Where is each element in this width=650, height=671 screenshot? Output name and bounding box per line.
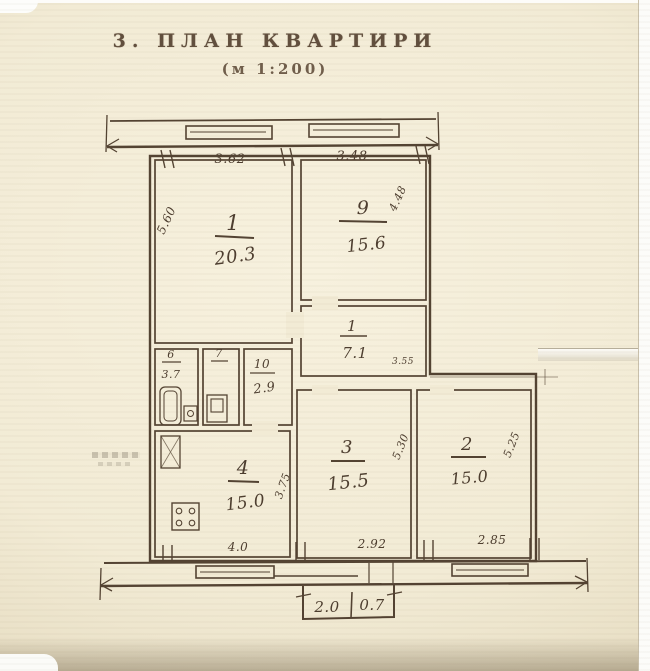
bottom-balcony: 2.0 0.7 — [296, 584, 402, 619]
door-opening — [252, 421, 278, 435]
scanned-floor-plan-page: 3. ПЛАН КВАРТИРИ (м 1:200) 3.62 3.48 — [0, 0, 650, 671]
dim-living2-depth: 5.25 — [501, 430, 523, 459]
dim-living9-depth: 4.48 — [386, 184, 409, 214]
dim-bottom-living3: 2.92 — [357, 537, 387, 551]
bath-area: 3.7 — [162, 368, 181, 381]
scan-corner-bottom-left — [0, 654, 58, 671]
room-labels: 1 20.3 9 15.6 1 7.1 3.55 6 3.7 7 10 2.9 … — [162, 197, 490, 515]
room-living3-number: 3 — [341, 437, 353, 458]
room-living3-area: 15.5 — [326, 470, 370, 495]
hall-number: 1 — [347, 317, 357, 335]
room-kitchen-number: 4 — [236, 457, 250, 479]
scan-corner-top-left — [0, 0, 38, 13]
stove-icon — [172, 503, 199, 530]
room-living2-area: 15.0 — [450, 466, 489, 488]
bathtub-icon — [160, 387, 181, 425]
room-living9-area: 15.6 — [346, 233, 388, 257]
hall-area: 7.1 — [342, 344, 367, 362]
room-living9-walls — [301, 160, 426, 300]
door-opening — [430, 385, 454, 395]
dim-living3-depth: 5.30 — [390, 432, 412, 461]
kitchen-sink-icon — [161, 436, 180, 468]
scan-edge-top — [0, 0, 650, 3]
room-kitchen-area: 15.0 — [224, 491, 266, 516]
dim-balcony-width: 2.0 — [313, 598, 339, 616]
dim-hall-width: 3.55 — [392, 357, 414, 367]
toilet-icon — [207, 395, 227, 422]
dim-bottom-living2: 2.85 — [477, 533, 507, 547]
drawing-scale-note: (м 1:200) — [70, 60, 480, 78]
floor-plan-drawing: 3.62 3.48 — [0, 0, 650, 671]
fixtures — [160, 387, 227, 530]
room-living1-number: 1 — [226, 211, 240, 235]
room-living9-number: 9 — [357, 197, 370, 219]
dim-balcony-depth: 0.7 — [359, 596, 384, 614]
bottom-facade-strip — [100, 538, 588, 600]
scan-smudge-artifact — [98, 462, 130, 466]
room-kitchen-walls — [155, 431, 290, 557]
door-opening — [312, 385, 338, 395]
bath-number: 6 — [167, 348, 175, 361]
scan-bottom-shadow — [0, 637, 650, 671]
dim-living1-depth: 5.60 — [154, 204, 179, 236]
corridor-number: 10 — [254, 357, 270, 371]
dim-bottom-kitchen: 4.0 — [227, 540, 249, 554]
room-living1-area: 20.3 — [212, 243, 258, 270]
scan-edge-right — [638, 0, 650, 671]
dim-arrow-right — [575, 558, 588, 592]
corridor-area: 2.9 — [251, 380, 276, 398]
scan-smudge-artifact — [92, 452, 140, 458]
room-living2-number: 2 — [460, 434, 473, 455]
drawing-title: 3. ПЛАН КВАРТИРИ — [70, 30, 480, 52]
sink-icon — [184, 406, 197, 421]
door-opening — [286, 312, 304, 338]
wc-number: 7 — [215, 347, 223, 360]
scan-streak-artifact — [538, 348, 650, 361]
door-opening — [312, 296, 338, 310]
dim-arrow-left — [100, 568, 113, 600]
